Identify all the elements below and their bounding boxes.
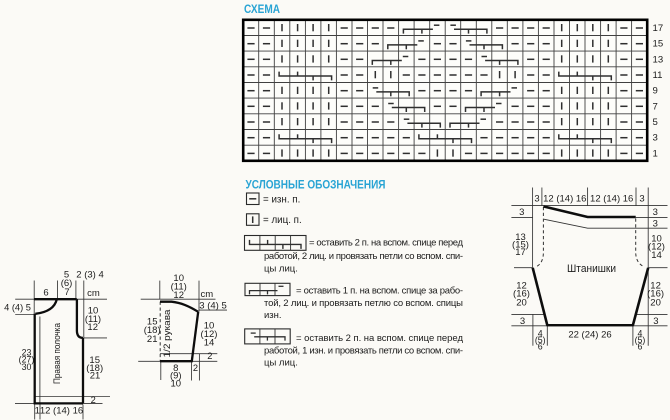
svg-text:СХЕМА: СХЕМА (244, 4, 280, 16)
svg-text:7: 7 (64, 287, 69, 298)
svg-text:cm: cm (200, 289, 213, 300)
svg-text:11: 11 (653, 70, 663, 81)
svg-text:14: 14 (651, 250, 662, 261)
svg-text:2: 2 (91, 395, 96, 405)
svg-text:20: 20 (516, 297, 527, 308)
svg-text:6: 6 (43, 287, 48, 298)
svg-text:= оставить 2 п. на вспом. спиц: = оставить 2 п. на вспом. спице перед (296, 333, 463, 344)
svg-text:21: 21 (90, 371, 101, 382)
svg-text:= оставить 2 п. на вспом. спиц: = оставить 2 п. на вспом. спице перед (309, 238, 463, 249)
svg-text:20: 20 (650, 297, 661, 308)
svg-text:17: 17 (653, 23, 664, 34)
svg-text:2 (3) 4: 2 (3) 4 (76, 270, 103, 281)
svg-text:5: 5 (653, 117, 658, 128)
svg-text:3: 3 (520, 316, 525, 327)
svg-text:4 (4) 5: 4 (4) 5 (4, 302, 31, 312)
svg-text:той, 2 лиц. и провязать петлю: той, 2 лиц. и провязать петлю со вспом. … (264, 298, 463, 309)
svg-text:3: 3 (639, 194, 644, 205)
svg-text:1: 1 (653, 148, 658, 159)
svg-text:13: 13 (653, 54, 664, 65)
svg-text:= оставить 1 п. на вспом. спиц: = оставить 1 п. на вспом. спице за рабо- (296, 286, 463, 297)
svg-text:6: 6 (538, 341, 543, 351)
svg-text:Правая полочка: Правая полочка (52, 323, 62, 384)
svg-text:cm: cm (87, 288, 100, 299)
svg-text:30: 30 (22, 362, 32, 372)
svg-text:3: 3 (653, 207, 658, 218)
svg-text:1/2 рукава: 1/2 рукава (162, 310, 172, 358)
svg-text:12 (14) 16: 12 (14) 16 (590, 194, 633, 205)
svg-text:12: 12 (173, 290, 184, 301)
svg-text:Штанишки: Штанишки (567, 263, 616, 275)
svg-text:12 (14) 16: 12 (14) 16 (543, 194, 586, 205)
svg-text:7: 7 (653, 101, 658, 112)
svg-text:12 (14) 16: 12 (14) 16 (40, 406, 83, 417)
svg-text:цы лиц.: цы лиц. (264, 358, 298, 369)
svg-text:3 (4) 5: 3 (4) 5 (199, 300, 226, 311)
svg-text:2: 2 (207, 351, 212, 361)
svg-text:работой, 2 лиц. и провязать пе: работой, 2 лиц. и провязать петли со всп… (264, 251, 463, 262)
svg-text:изн.: изн. (264, 310, 282, 321)
svg-text:3: 3 (534, 194, 539, 205)
svg-text:6: 6 (638, 341, 643, 351)
svg-text:цы лиц.: цы лиц. (264, 264, 298, 275)
svg-text:3: 3 (653, 219, 658, 230)
svg-text:9: 9 (653, 86, 658, 97)
svg-text:2: 2 (193, 363, 198, 373)
svg-text:12: 12 (87, 322, 98, 333)
svg-text:10: 10 (171, 379, 182, 390)
svg-text:14: 14 (204, 338, 215, 349)
svg-text:работой, 1 изн. и провязать пе: работой, 1 изн. и провязать петли со всп… (264, 346, 463, 357)
svg-text:= лиц. п.: = лиц. п. (263, 215, 302, 226)
svg-text:УСЛОВНЫЕ ОБОЗНАЧЕНИЯ: УСЛОВНЫЕ ОБОЗНАЧЕНИЯ (246, 180, 386, 192)
svg-text:3: 3 (653, 133, 658, 144)
svg-text:3: 3 (519, 207, 524, 218)
svg-text:15: 15 (653, 39, 664, 50)
svg-text:3: 3 (653, 316, 658, 327)
svg-text:21: 21 (147, 334, 158, 345)
svg-text:= изн. п.: = изн. п. (263, 194, 300, 205)
svg-text:17: 17 (515, 247, 526, 258)
svg-text:22 (24) 26: 22 (24) 26 (568, 330, 611, 341)
